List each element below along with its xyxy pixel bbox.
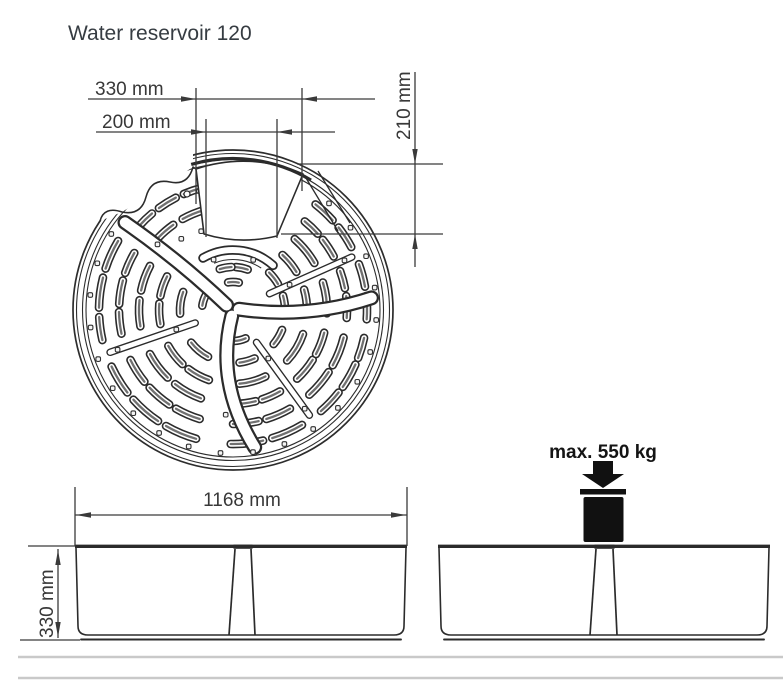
max-load-label: max. 550 kg <box>549 442 657 463</box>
side-view-right-tub <box>438 545 770 640</box>
ground-lines <box>18 657 783 678</box>
dim-label-overall-height: 330 mm <box>37 569 58 638</box>
drawing-page: Water reservoir 120 330 mm 200 mm 210 mm… <box>0 0 783 700</box>
side-view-left-tub <box>75 545 407 640</box>
dim-label-opening-inner: 200 mm <box>102 112 171 133</box>
lid-notch-cutout <box>79 134 201 221</box>
lid-filler-opening <box>191 159 350 241</box>
page-title: Water reservoir 120 <box>68 22 252 45</box>
dim-label-opening-depth: 210 mm <box>394 71 415 140</box>
dim-label-opening-outer: 330 mm <box>95 79 164 100</box>
dim-label-overall-width: 1168 mm <box>203 490 281 511</box>
load-weight-icon <box>580 461 626 542</box>
technical-drawing: Water reservoir 120 330 mm 200 mm 210 mm… <box>0 0 783 700</box>
